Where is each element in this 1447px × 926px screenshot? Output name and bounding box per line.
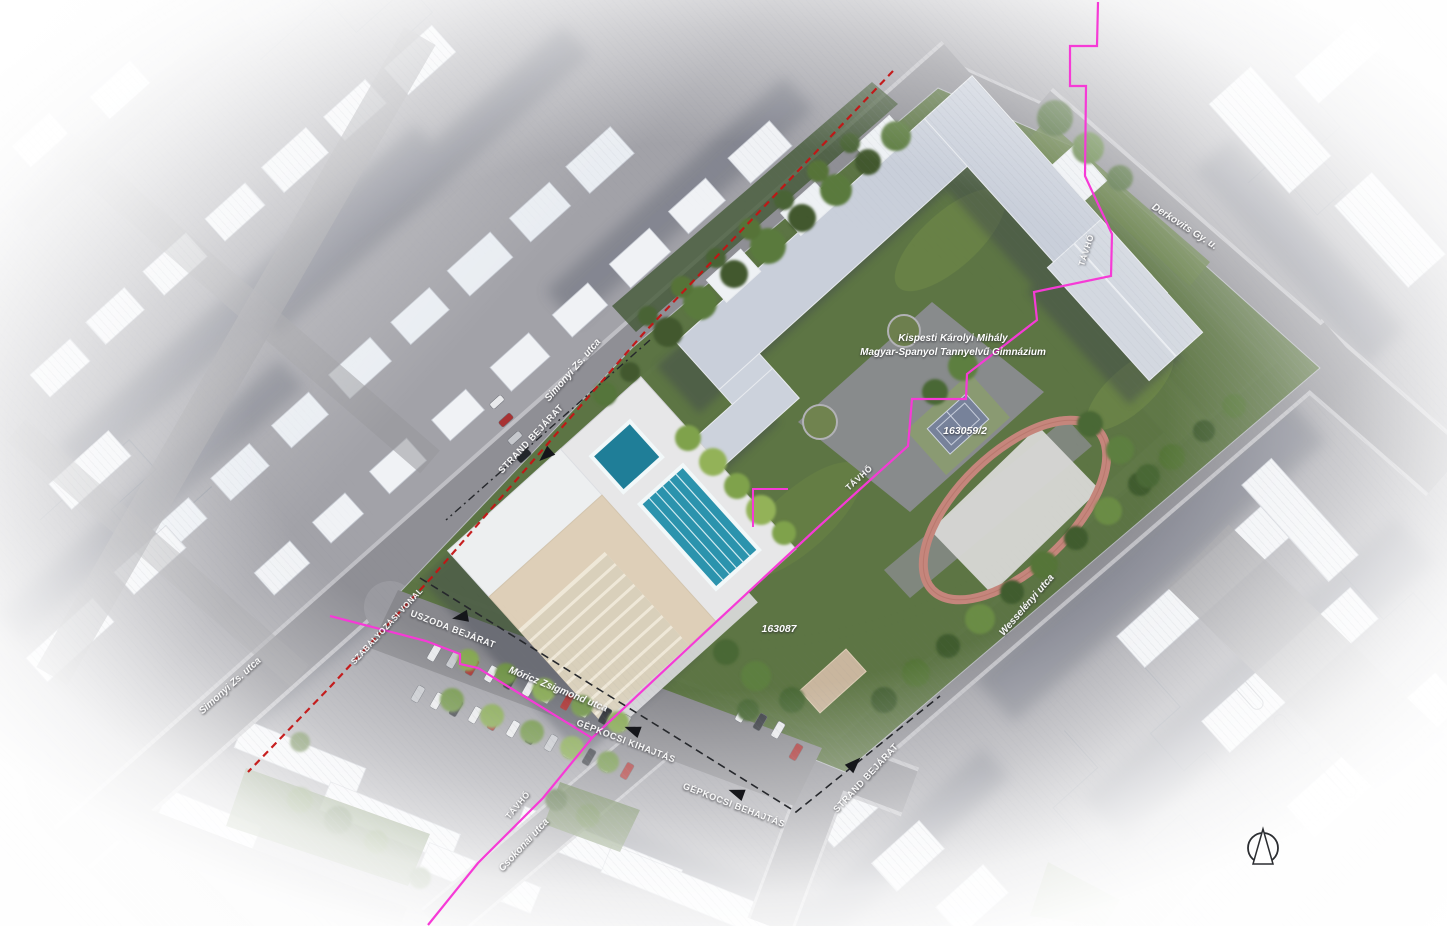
entrance-label-strand-bottom: STRAND BEJÁRAT [831,742,900,815]
uszoda-arrow-icon [451,610,469,625]
street-label-moricz: Móricz Zsigmond utca [507,665,609,715]
school-name-line1: Kispesti Károlyi Mihály [898,333,1008,344]
street-label-derkovits: Derkovits Gy. u. [1150,202,1220,252]
entrance-label-uszoda: USZODA BEJÁRAT [409,608,497,650]
school-name-line2: Magyar-Spanyol Tannyelvű Gimnázium [860,347,1046,358]
boundary-dashed-lines [420,340,940,812]
strand-top-arrow-icon [535,446,555,466]
parcel-number-school: 163059/2 [943,425,987,437]
site-plan-rendering: Kispesti Károlyi Mihály Magyar-Spanyol T… [0,0,1447,926]
street-label-simonyi-bottom: Simonyi Zs. utca [197,655,264,717]
annotation-layer: Kispesti Károlyi Mihály Magyar-Spanyol T… [0,0,1447,926]
parcel-number-pool: 163087 [761,623,797,635]
regulation-line [248,71,893,772]
label-regulation-line: SZABÁLYOZÁSI VONAL [350,586,425,666]
label-tavho-1: TÁVHŐ [1075,233,1096,268]
label-car-entry: GÉPKOCSI BEHAJTÁS [682,781,787,829]
tavho-lines [330,2,1112,925]
street-label-simonyi-top: Simonyi Zs. utca [543,336,604,404]
north-arrow-icon [1248,829,1278,864]
street-label-wesselenyi: Wesselényi utca [997,572,1057,638]
label-tavho-3: TÁVHŐ [503,789,532,821]
street-label-csokonai: Csokonai utca [497,816,552,874]
label-tavho-2: TÁVHŐ [843,462,875,492]
